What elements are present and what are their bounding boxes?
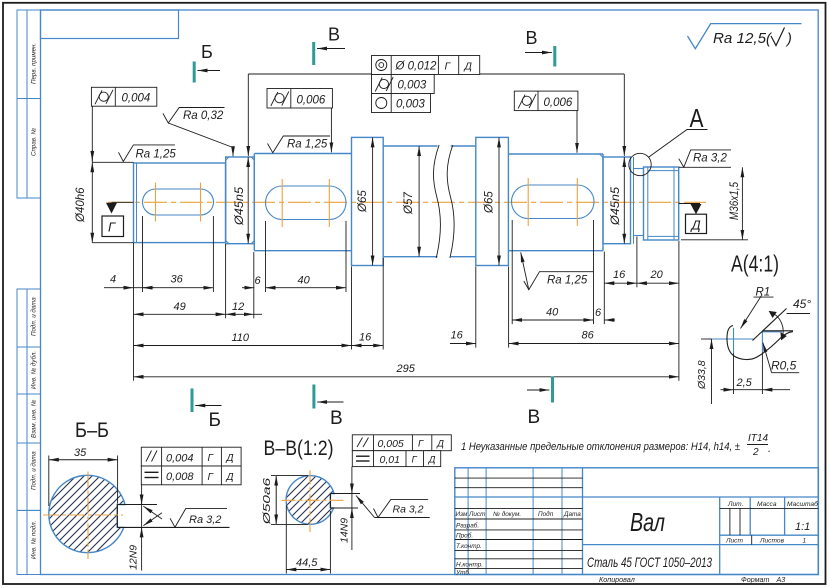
- svg-text:Подп. и дата: Подп. и дата: [31, 297, 38, 336]
- svg-text:0,008: 0,008: [166, 471, 194, 483]
- svg-text:Листов: Листов: [759, 537, 785, 544]
- svg-text:Масса: Масса: [757, 501, 777, 508]
- svg-text:Ø50а6: Ø50а6: [261, 478, 273, 526]
- svg-text:R1: R1: [756, 287, 771, 299]
- svg-text:Изм: Изм: [456, 511, 468, 518]
- svg-text:2: 2: [752, 447, 759, 458]
- svg-text:Лит.: Лит.: [727, 501, 744, 508]
- svg-text:В: В: [330, 408, 343, 429]
- svg-text:49: 49: [174, 301, 186, 313]
- svg-text:6: 6: [255, 275, 262, 287]
- svg-text:Проб.: Проб.: [456, 532, 473, 540]
- svg-text:86: 86: [582, 330, 595, 342]
- svg-text:Д: Д: [428, 455, 436, 466]
- svg-text:Б: Б: [209, 410, 221, 431]
- svg-text:0,003: 0,003: [398, 80, 427, 92]
- svg-text:Т.контр.: Т.контр.: [456, 543, 482, 550]
- svg-text:40: 40: [298, 274, 311, 286]
- svg-text:Ø45n5: Ø45n5: [234, 186, 246, 226]
- svg-text:А: А: [690, 103, 705, 133]
- svg-text:Ra 1,25: Ra 1,25: [547, 275, 588, 287]
- svg-text:16: 16: [359, 332, 372, 344]
- svg-text:Инв. № дубл.: Инв. № дубл.: [31, 351, 38, 389]
- svg-text:Справ. №: Справ. №: [31, 128, 38, 156]
- svg-text:): ): [785, 32, 792, 48]
- svg-text:А3: А3: [776, 575, 786, 584]
- svg-text:Н.контр.: Н.контр.: [456, 561, 483, 568]
- svg-text:Ra 1,25: Ra 1,25: [287, 139, 328, 151]
- svg-text:0,005: 0,005: [378, 438, 404, 450]
- svg-text:2,5: 2,5: [736, 377, 753, 389]
- svg-text:20: 20: [650, 269, 664, 281]
- svg-text:Лист: Лист: [725, 537, 743, 544]
- svg-text:0,006: 0,006: [297, 94, 326, 106]
- svg-text:44,5: 44,5: [296, 557, 318, 569]
- svg-text:Г: Г: [418, 439, 424, 450]
- svg-text:Д: Д: [226, 472, 234, 483]
- svg-text:Д: Д: [436, 439, 444, 450]
- svg-text:16: 16: [613, 269, 626, 281]
- svg-text:1:1: 1:1: [795, 521, 810, 533]
- svg-text:Д: Д: [690, 217, 701, 232]
- svg-text:12: 12: [232, 301, 244, 313]
- svg-text:Ø45n5: Ø45n5: [610, 186, 622, 226]
- svg-text:Д: Д: [464, 61, 473, 73]
- svg-text:45°: 45°: [793, 297, 811, 311]
- svg-text:110: 110: [232, 332, 250, 344]
- svg-text:Ra 3,2: Ra 3,2: [189, 514, 221, 526]
- svg-text:Ø40h6: Ø40h6: [75, 187, 87, 223]
- svg-text:0,004: 0,004: [166, 452, 194, 464]
- svg-text:Б: Б: [201, 42, 213, 62]
- svg-text:А(4:1): А(4:1): [731, 251, 779, 277]
- svg-text:Ra 1,25: Ra 1,25: [136, 149, 177, 161]
- svg-text:.: .: [768, 443, 771, 455]
- svg-text:В: В: [528, 407, 541, 428]
- svg-text:№ докум.: № докум.: [493, 510, 521, 518]
- svg-text:Утб.: Утб.: [455, 568, 471, 576]
- svg-text:Д: Д: [226, 453, 234, 464]
- svg-text:Б–Б: Б–Б: [75, 419, 109, 442]
- svg-text:Разраб.: Разраб.: [456, 522, 479, 530]
- svg-text:1 Неуказанные предельные откло: 1 Неуказанные предельные отклонения разм…: [461, 441, 740, 453]
- svg-text:Взам. инв. №: Взам. инв. №: [31, 399, 38, 438]
- svg-text:16: 16: [451, 330, 464, 342]
- svg-text:Вал: Вал: [630, 507, 665, 537]
- svg-text:35: 35: [74, 447, 87, 459]
- svg-text:40: 40: [546, 306, 559, 318]
- svg-text:Копировал: Копировал: [599, 575, 635, 584]
- svg-text:Формат: Формат: [741, 575, 770, 584]
- svg-text:4: 4: [110, 274, 116, 286]
- svg-text:В: В: [526, 28, 538, 48]
- svg-text:Лист: Лист: [468, 511, 486, 518]
- svg-text:295: 295: [396, 363, 416, 375]
- svg-text:Дата: Дата: [563, 511, 581, 518]
- svg-text:R0,5: R0,5: [771, 359, 797, 373]
- svg-text:В–В(1:2): В–В(1:2): [264, 437, 334, 460]
- svg-text:Ra 3,2: Ra 3,2: [393, 504, 424, 516]
- svg-text:Ø65: Ø65: [484, 191, 496, 214]
- svg-text:В: В: [328, 25, 340, 45]
- svg-text:Подп: Подп: [538, 510, 554, 518]
- svg-text:М36х1,5: М36х1,5: [729, 181, 741, 220]
- svg-text:6: 6: [595, 307, 602, 319]
- svg-text:0,004: 0,004: [122, 93, 151, 105]
- svg-text:12N9: 12N9: [128, 545, 140, 570]
- svg-text:0,003: 0,003: [396, 99, 425, 111]
- svg-text:Ø33,8: Ø33,8: [696, 360, 708, 390]
- svg-text:1: 1: [803, 537, 807, 544]
- svg-text:Перв. примен.: Перв. примен.: [31, 43, 38, 84]
- svg-text:36: 36: [171, 274, 184, 286]
- svg-text:Ø57: Ø57: [403, 192, 415, 215]
- svg-text:Подп. и дата: Подп. и дата: [31, 451, 38, 490]
- svg-text:IT14: IT14: [748, 433, 768, 444]
- svg-text:0,01: 0,01: [380, 454, 400, 466]
- svg-text:Ra 3,2: Ra 3,2: [693, 152, 727, 164]
- svg-text:0,006: 0,006: [544, 97, 573, 109]
- svg-text:Г: Г: [412, 455, 418, 466]
- svg-text:Г: Г: [108, 220, 116, 235]
- svg-text:Ra 0,32: Ra 0,32: [183, 110, 224, 122]
- svg-text:Ø65: Ø65: [357, 190, 369, 213]
- svg-text:Масштаб: Масштаб: [787, 500, 818, 508]
- svg-text:Ø 0,012: Ø 0,012: [395, 61, 438, 73]
- svg-text:Сталь 45 ГОСТ 1050–2013: Сталь 45 ГОСТ 1050–2013: [587, 554, 712, 570]
- svg-text:14N9: 14N9: [339, 518, 351, 543]
- svg-text:Инв. № подл.: Инв. № подл.: [31, 521, 38, 559]
- svg-text:Ra 12,5: Ra 12,5: [713, 31, 767, 47]
